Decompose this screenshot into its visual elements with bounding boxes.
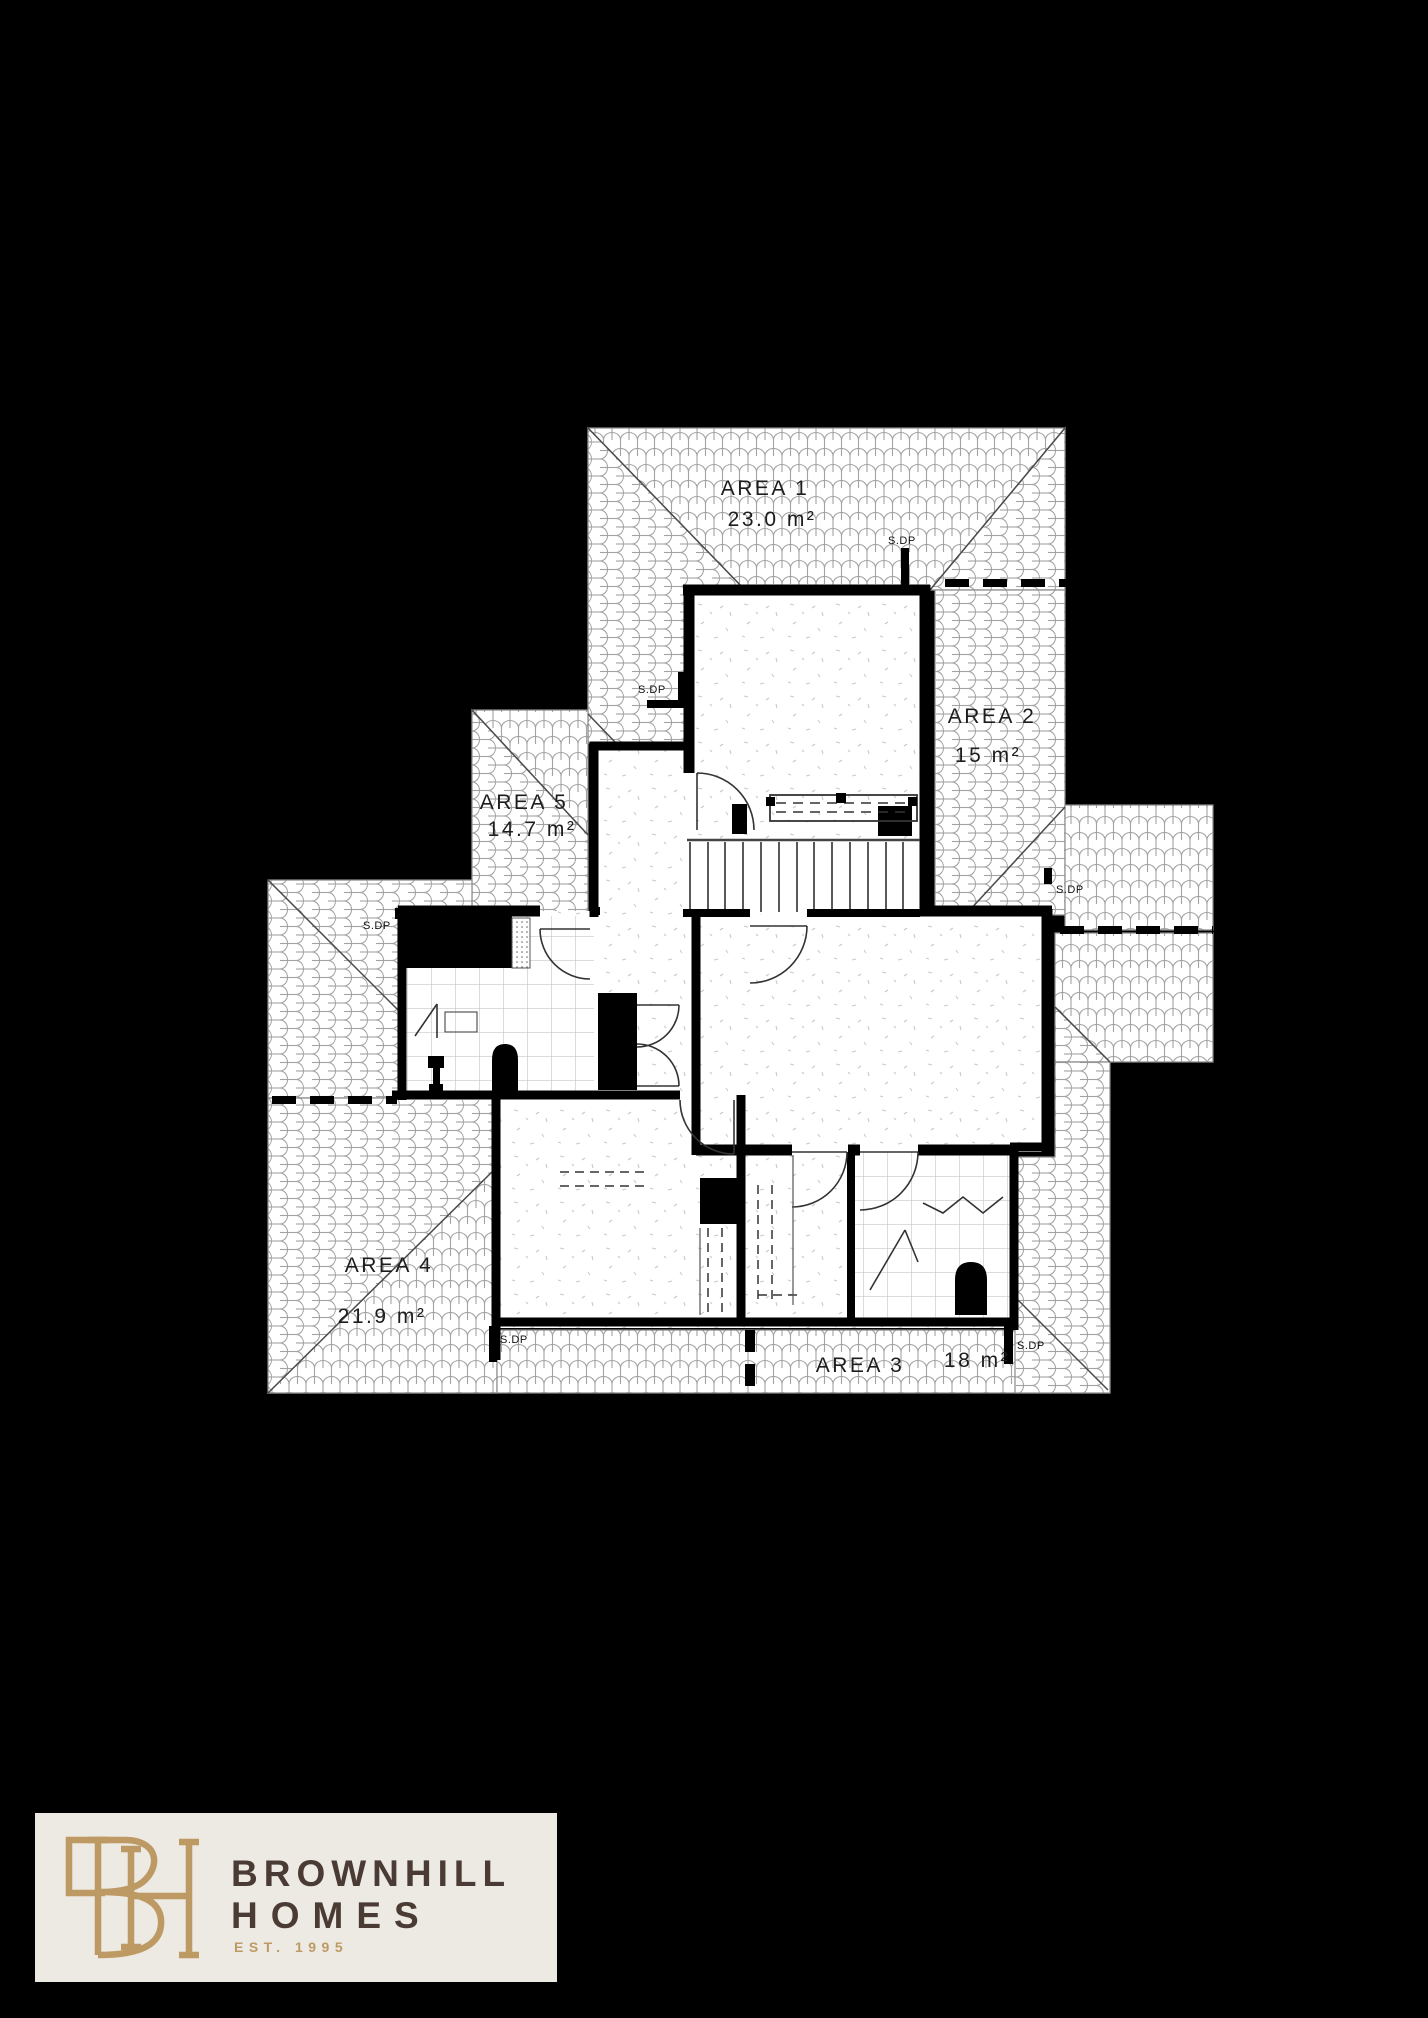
bathroom-cupboard — [404, 916, 512, 968]
downpipe-label-1: S.DP — [638, 684, 666, 696]
area-4-name: AREA 4 — [345, 1254, 434, 1278]
logo-tagline: EST. 1995 — [234, 1939, 348, 1955]
area-4-size: 21.9 m² — [338, 1305, 427, 1329]
floor-plan-page: AREA 1 23.0 m² AREA 2 15 m² AREA 3 18 m²… — [0, 0, 1428, 2018]
area-3-size: 18 m² — [944, 1349, 1010, 1373]
downpipe-label-4: S.DP — [1056, 884, 1084, 896]
ensuite-floor — [853, 1152, 1011, 1326]
brownhill-monogram-icon — [53, 1824, 213, 1970]
downpipe-label-3: S.DP — [363, 920, 391, 932]
robe-shelf-block — [700, 1178, 741, 1224]
downpipe-label-6: S.DP — [1017, 1340, 1045, 1352]
logo-brand-line2: HOMES — [231, 1895, 432, 1937]
area-2-size: 15 m² — [955, 744, 1021, 768]
area-1-size: 23.0 m² — [728, 508, 817, 532]
area-5-size: 14.7 m² — [488, 818, 577, 842]
area-1-name: AREA 1 — [721, 477, 810, 501]
stair-floor — [683, 840, 923, 914]
shower-hatch — [512, 918, 530, 968]
roof-plan-drawing — [0, 0, 1428, 2018]
brownhill-homes-logo-panel: BROWNHILL HOMES EST. 1995 — [35, 1813, 557, 1982]
logo-brand-line1: BROWNHILL — [231, 1853, 511, 1895]
area-5-name: AREA 5 — [480, 791, 569, 815]
area-3-name: AREA 3 — [816, 1354, 905, 1378]
balustrade-stub-left — [732, 804, 747, 834]
ensuite-toilet — [955, 1262, 987, 1315]
linen-cupboard — [598, 993, 637, 1090]
basin — [492, 1044, 518, 1092]
downpipe-label-5: S.DP — [500, 1334, 528, 1346]
roof-area-2-lower — [1065, 805, 1213, 930]
downpipe-label-2: S.DP — [888, 535, 916, 547]
area-2-name: AREA 2 — [948, 705, 1037, 729]
